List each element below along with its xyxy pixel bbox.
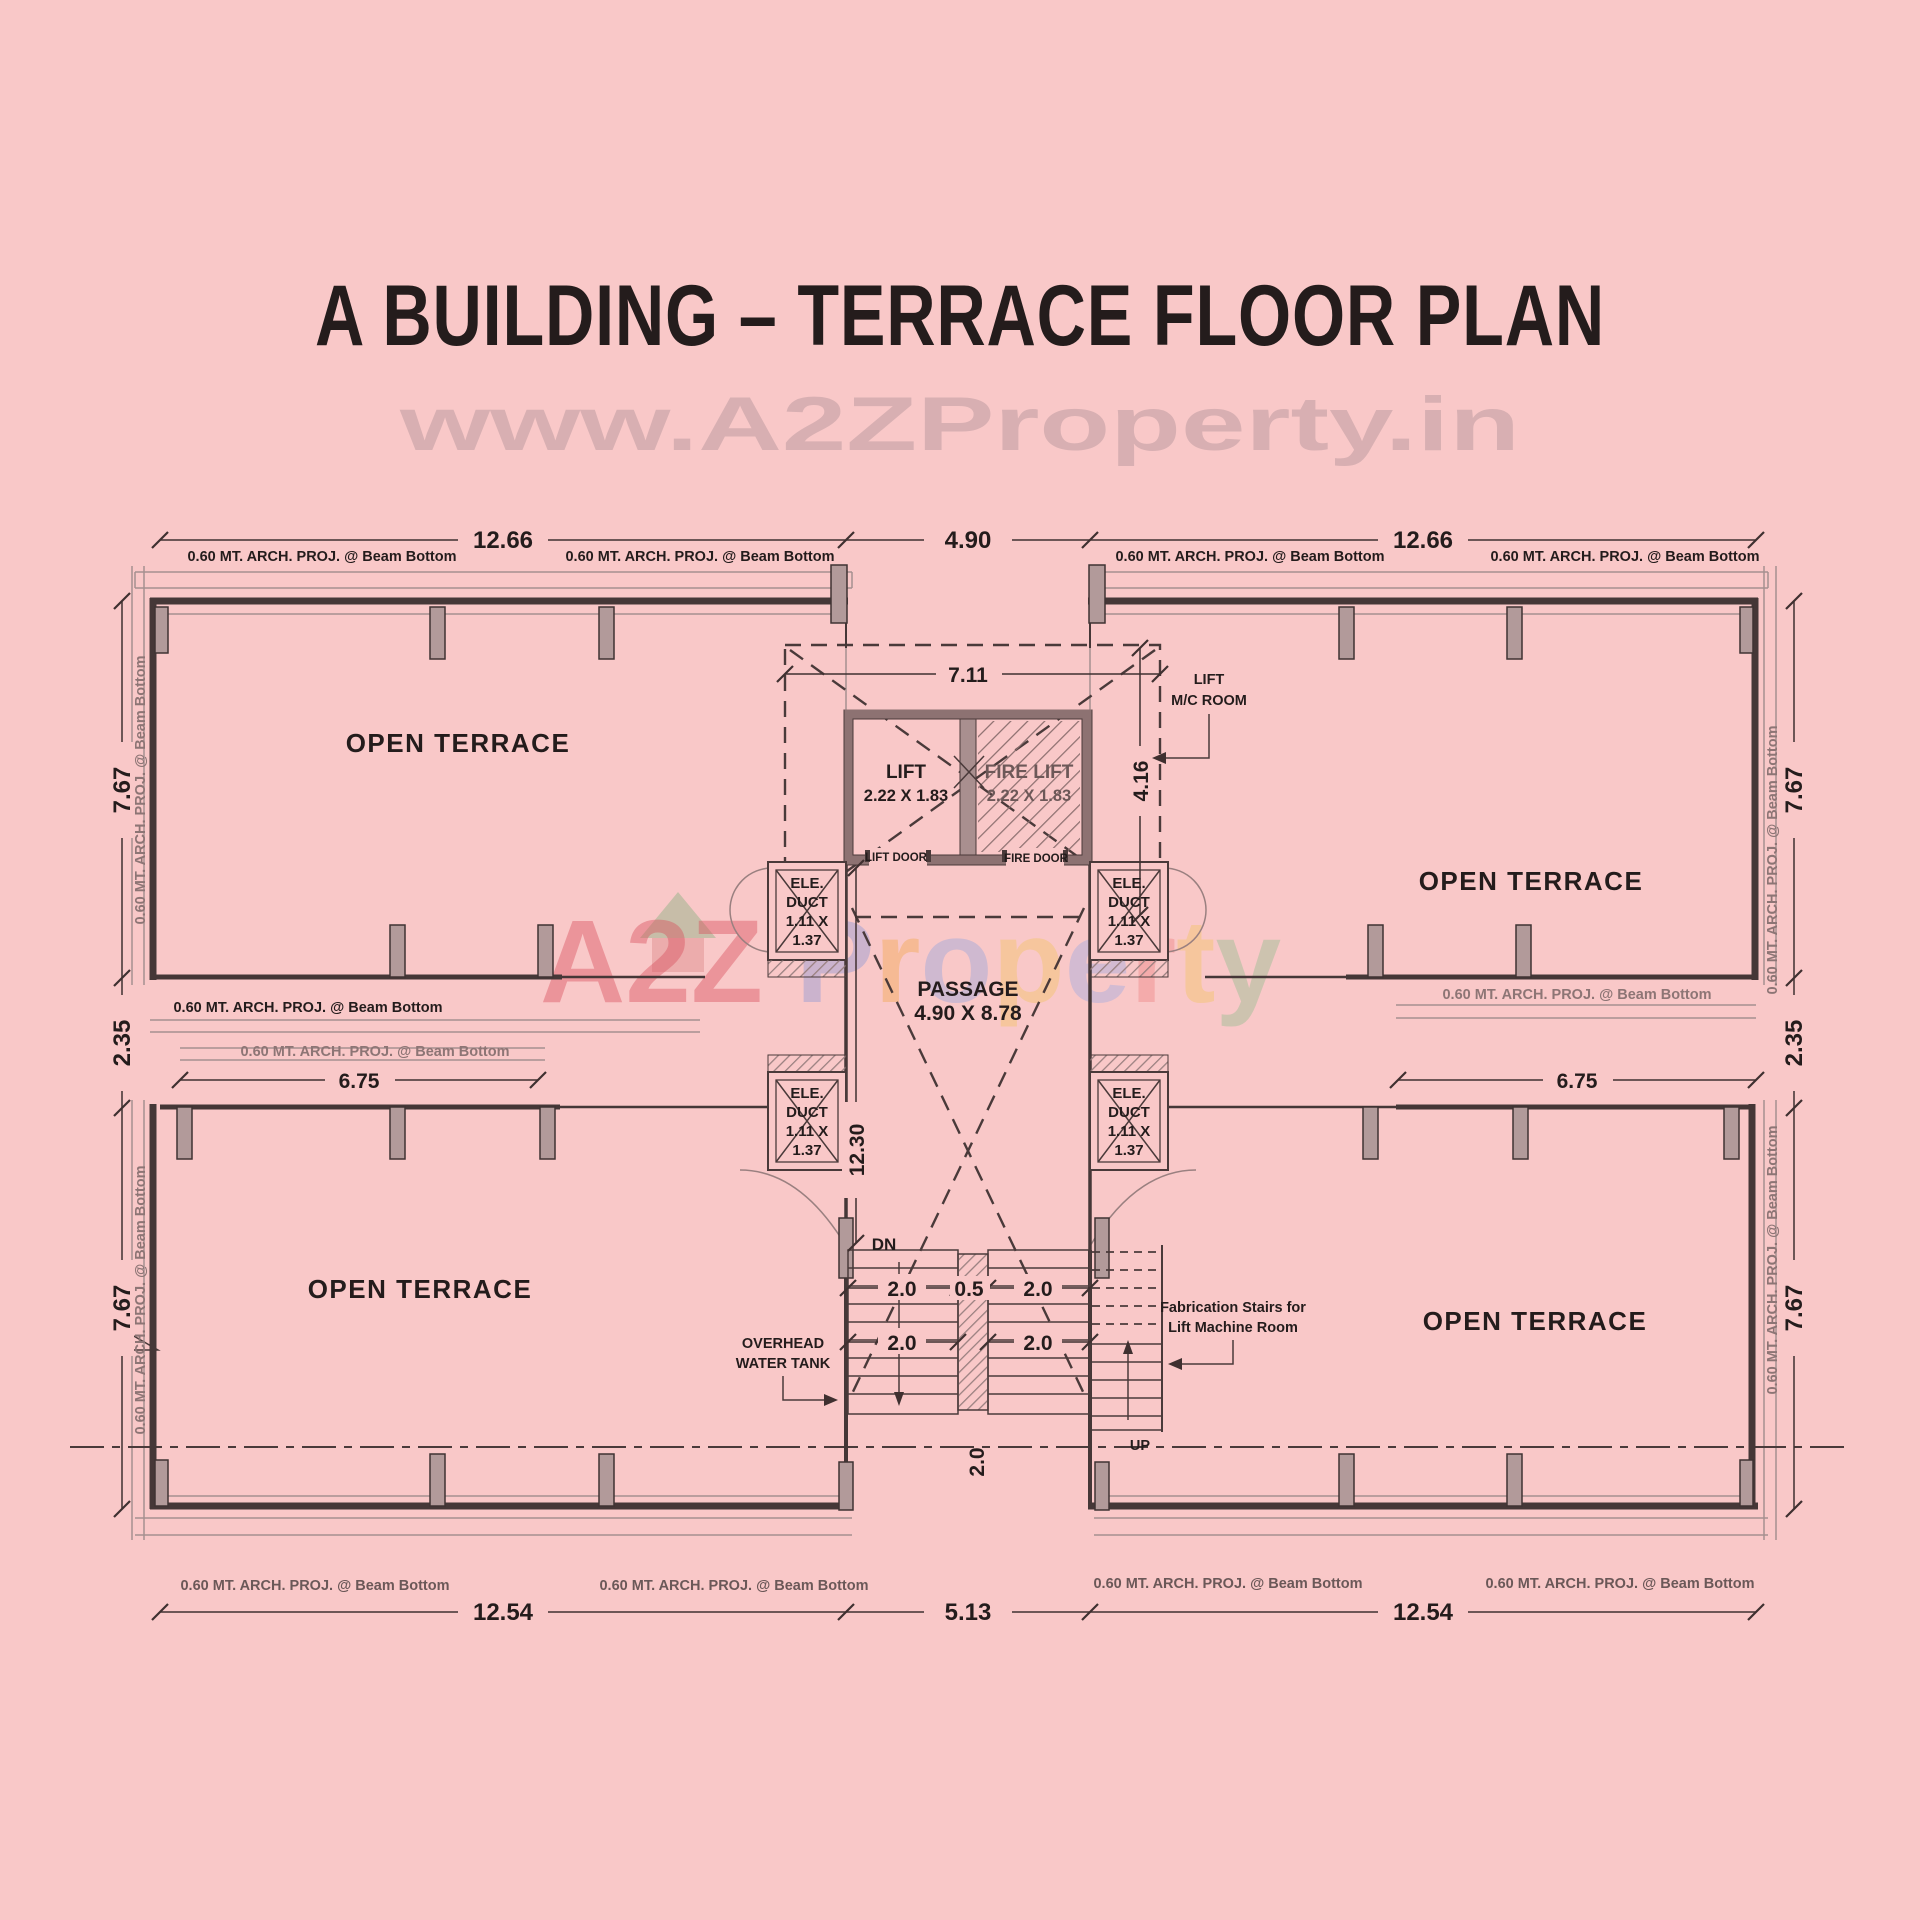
duct-label: 1.37 [1114,1142,1143,1159]
duct-label: ELE. [790,1085,823,1102]
fire-door-label: FIRE DOOR [1004,853,1069,865]
dim-mid-left: 6.75 [339,1070,380,1093]
room-lift-size: 2.22 X 1.83 [864,787,948,805]
dim-top-left: 12.66 [473,527,533,554]
dim-bottom-right: 12.54 [1393,1599,1454,1626]
room-passage: PASSAGE [917,978,1018,1001]
dim-bottom-center: 5.13 [945,1599,992,1626]
room-open-terrace-bottom-right: OPEN TERRACE [1423,1306,1648,1336]
duct-label: DUCT [786,1104,828,1121]
lift-door-label: LIFT DOOR [865,852,928,864]
dim-stair-r1-r: 2.0 [1023,1278,1052,1301]
room-open-terrace-top-right: OPEN TERRACE [1419,866,1644,896]
brand-letter: Z [691,896,763,1028]
lift-mc-room-label: LIFT [1194,672,1225,688]
duct-label: 1.11 X [1108,1123,1151,1140]
fabrication-stairs-label: Fabrication Stairs for [1160,1300,1306,1316]
duct-label: 1.11 X [786,1123,829,1140]
dim-lift-depth: 4.16 [1130,761,1153,802]
duct-label: 1.37 [792,1142,821,1159]
room-open-terrace-bottom-left: OPEN TERRACE [308,1274,533,1304]
room-passage-size: 4.90 X 8.78 [914,1002,1022,1025]
duct-label: 1.37 [1114,932,1143,949]
dim-top-right: 12.66 [1393,527,1453,554]
arch-proj-label: 0.60 MT. ARCH. PROJ. @ Beam Bottom [599,1578,868,1594]
dim-left-mid: 2.35 [109,1020,136,1067]
arch-proj-label: 0.60 MT. ARCH. PROJ. @ Beam Bottom [240,1044,509,1060]
arch-proj-label: 0.60 MT. ARCH. PROJ. @ Beam Bottom [1485,1576,1754,1592]
dim-stair-r1-m: 0.5 [954,1278,984,1301]
arch-proj-label: 0.60 MT. ARCH. PROJ. @ Beam Bottom [1115,549,1384,565]
duct-label: DUCT [1108,1104,1150,1121]
watermark-url: www.A2ZProperty.in [398,382,1520,467]
room-open-terrace-top-left: OPEN TERRACE [346,728,571,758]
arch-proj-label: 0.60 MT. ARCH. PROJ. @ Beam Bottom [173,1000,442,1016]
arch-proj-label-vertical: 0.60 MT. ARCH. PROJ. @ Beam Bottom [1765,1125,1781,1394]
arch-proj-label: 0.60 MT. ARCH. PROJ. @ Beam Bottom [1442,987,1711,1003]
dim-right-upper: 7.67 [1781,767,1808,814]
overhead-tank-label2: WATER TANK [736,1356,831,1372]
lift-mc-room-label2: M/C ROOM [1171,693,1247,709]
duct-label: 1.11 X [1108,913,1151,930]
arch-proj-label: 0.60 MT. ARCH. PROJ. @ Beam Bottom [1093,1576,1362,1592]
dim-stair-r2-r: 2.0 [1023,1332,1052,1355]
stairs-up-label: UP [1130,1438,1150,1454]
brand-letter: y [1215,896,1281,1028]
room-fire-lift-size: 2.22 X 1.83 [987,787,1071,805]
arch-proj-label-vertical: 0.60 MT. ARCH. PROJ. @ Beam Bottom [133,655,149,924]
dim-stair-bottom: 2.0 [966,1447,989,1476]
dim-lift-width: 7.11 [948,664,988,687]
dim-stair-r2-l: 2.0 [887,1332,916,1355]
overhead-tank-label: OVERHEAD [742,1336,824,1352]
dim-left-lower: 7.67 [109,1285,136,1332]
arch-proj-label: 0.60 MT. ARCH. PROJ. @ Beam Bottom [187,549,456,565]
duct-label: 1.11 X [786,913,829,930]
page-title: A BUILDING – TERRACE FLOOR PLAN [315,268,1605,364]
duct-label: ELE. [1112,875,1145,892]
dim-right-lower: 7.67 [1781,1285,1808,1332]
duct-label: ELE. [790,875,823,892]
dim-mid-right: 6.75 [1557,1070,1598,1093]
brand-letter: 2 [625,896,691,1028]
terrace-floor-plan-page: www.A2ZProperty.in A2Z Property A BUILDI… [0,0,1920,1920]
room-lift: LIFT [886,762,926,783]
stairs-down-label: DN [872,1235,897,1254]
arch-proj-label: 0.60 MT. ARCH. PROJ. @ Beam Bottom [1490,549,1759,565]
fabrication-stairs-label2: Lift Machine Room [1168,1320,1298,1336]
dim-bottom-left: 12.54 [473,1599,534,1626]
arch-proj-label: 0.60 MT. ARCH. PROJ. @ Beam Bottom [565,549,834,565]
room-fire-lift: FIRE LIFT [985,762,1074,783]
duct-label: DUCT [786,894,828,911]
dim-stair-r1-l: 2.0 [887,1278,916,1301]
brand-letter: t [1176,896,1215,1028]
duct-label: DUCT [1108,894,1150,911]
arch-proj-label-vertical: 0.60 MT. ARCH. PROJ. @ Beam Bottom [133,1165,149,1434]
dim-right-mid: 2.35 [1781,1020,1808,1067]
floor-plan-drawing: www.A2ZProperty.in A2Z Property A BUILDI… [0,0,1920,1920]
dim-top-center: 4.90 [945,527,992,554]
arch-proj-label: 0.60 MT. ARCH. PROJ. @ Beam Bottom [180,1578,449,1594]
arch-proj-label-vertical: 0.60 MT. ARCH. PROJ. @ Beam Bottom [1765,725,1781,994]
duct-label: ELE. [1112,1085,1145,1102]
dim-passage-height: 12.30 [846,1124,869,1177]
duct-label: 1.37 [792,932,821,949]
dim-left-upper: 7.67 [109,767,136,814]
